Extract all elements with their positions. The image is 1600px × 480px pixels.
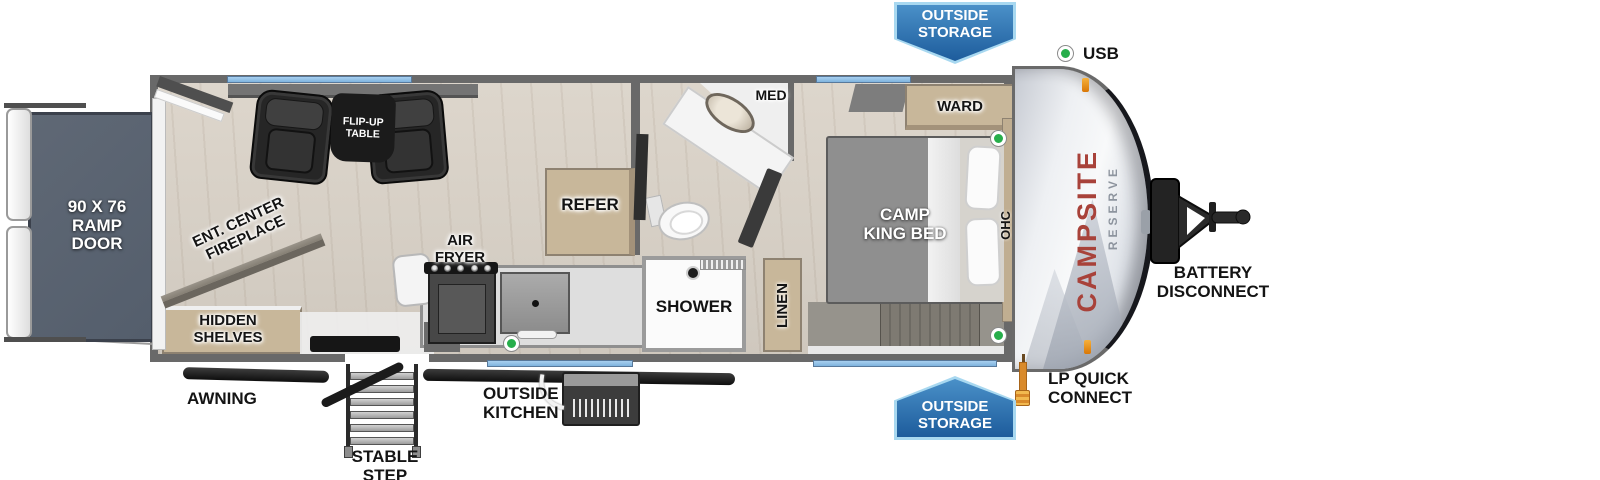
kitchen-sink	[500, 272, 570, 334]
awning-label: AWNING	[187, 390, 257, 409]
ward-label: WARD	[905, 99, 1015, 116]
storage-bottom-line2: STORAGE	[918, 416, 992, 433]
lp-line1: LP QUICK	[1048, 370, 1132, 389]
lp-connector-icon	[1015, 390, 1030, 406]
flip-up-table: FLIP-UP TABLE	[330, 93, 396, 163]
outside-storage-top-text: OUTSIDE STORAGE	[897, 5, 1013, 61]
refer-label: REFER	[545, 196, 635, 215]
ramp-door-line1: 90 X 76	[42, 198, 152, 217]
ramp-door-line3: DOOR	[42, 235, 152, 254]
step-rung	[350, 437, 414, 445]
med-cabinet-label: MED	[749, 88, 793, 103]
shower-shelf	[700, 259, 746, 270]
battery-disconnect-label: BATTERY DISCONNECT	[1152, 264, 1274, 301]
bed-line1: CAMP	[830, 206, 980, 225]
griddle-vents	[573, 399, 631, 417]
ramp-opening-frame	[152, 98, 166, 350]
air-fryer-line2: FRYER	[415, 250, 505, 267]
range-air-fryer	[428, 272, 496, 344]
camp-king-bed-label: CAMP KING BED	[830, 206, 980, 243]
ohc-label: OHC	[998, 211, 1013, 240]
usb-label: USB	[1083, 45, 1119, 64]
step-rung	[350, 411, 414, 419]
outside-kitchen-line1: OUTSIDE	[483, 385, 559, 404]
window-bottom-bedroom	[813, 360, 997, 367]
brand-series-text: RESERVE	[1106, 165, 1120, 250]
shower-label: SHOWER	[642, 298, 746, 317]
outside-kitchen-label: OUTSIDE KITCHEN	[483, 385, 559, 422]
lp-pipe-icon	[1019, 362, 1027, 392]
rv-floorplan-diagram: 90 X 76 RAMP DOOR FLIP-UP TABLE ENT. CEN…	[0, 0, 1600, 480]
window-top-living	[227, 76, 412, 83]
step-rung	[350, 424, 414, 432]
hidden-shelves-line1: HIDDEN	[172, 313, 284, 330]
outside-storage-badge-top: OUTSIDE STORAGE	[894, 2, 1016, 64]
brand-reserve: RESERVE	[1106, 140, 1120, 275]
brand-name-text: CAMPSITE	[1072, 149, 1103, 313]
entry-mat	[310, 336, 400, 352]
recliner-chair-left	[249, 88, 336, 186]
window-bottom-kitchen	[487, 360, 633, 367]
outside-storage-bottom-text: OUTSIDE STORAGE	[897, 379, 1013, 437]
lp-quick-connect-label: LP QUICK CONNECT	[1048, 370, 1132, 407]
ramp-frame-bottom	[4, 337, 86, 342]
ramp-cushion-top	[6, 108, 32, 221]
bed-foot-dresser	[880, 300, 980, 348]
outside-kitchen-griddle-icon	[562, 372, 640, 426]
usb-dot-bed-top	[991, 131, 1006, 146]
air-fryer-label: AIR FRYER	[415, 233, 505, 266]
lp-line2: CONNECT	[1048, 389, 1132, 408]
bedroom-overhead-cabinet	[849, 84, 910, 112]
ramp-door-label: 90 X 76 RAMP DOOR	[42, 198, 152, 254]
awning-bar-left	[183, 367, 329, 383]
marker-light-top-icon	[1082, 78, 1089, 92]
outside-storage-badge-bottom: OUTSIDE STORAGE	[894, 376, 1016, 440]
ramp-frame-top	[4, 103, 86, 108]
bed-line2: KING BED	[830, 225, 980, 244]
brand-campsite: CAMPSITE	[1072, 118, 1103, 343]
stable-step-label: STABLE STEP	[330, 448, 440, 480]
battery-line2: DISCONNECT	[1152, 283, 1274, 302]
storage-bottom-line1: OUTSIDE	[922, 399, 989, 416]
window-top-bedroom	[816, 76, 911, 83]
hitch-a-frame	[1178, 190, 1254, 254]
usb-dot-kitchen	[504, 336, 519, 351]
entry-door-opening	[345, 354, 429, 364]
shower-drain	[688, 268, 698, 278]
kitchen-faucet	[517, 330, 557, 339]
step-rung	[350, 398, 414, 406]
hidden-shelves-label: HIDDEN SHELVES	[172, 313, 284, 346]
battery-line1: BATTERY	[1152, 264, 1274, 283]
flip-up-table-line2: TABLE	[345, 127, 380, 140]
hidden-shelves-line2: SHELVES	[172, 330, 284, 347]
linen-cabinet: LINEN	[763, 258, 802, 352]
usb-dot-bed-bottom	[991, 328, 1006, 343]
bedroom-baseboard	[808, 346, 1004, 354]
step-rail-right	[414, 364, 418, 448]
ramp-cushion-bottom	[6, 226, 32, 339]
battery-box	[1150, 178, 1180, 264]
storage-top-line2: STORAGE	[918, 25, 992, 42]
storage-top-line1: OUTSIDE	[922, 8, 989, 25]
ramp-door-line2: RAMP	[42, 217, 152, 236]
usb-dot-callout-icon	[1058, 46, 1073, 61]
air-fryer-line1: AIR	[415, 233, 505, 250]
step-rail-left	[346, 364, 350, 448]
outside-kitchen-line2: KITCHEN	[483, 404, 559, 423]
linen-label: LINEN	[774, 283, 791, 328]
